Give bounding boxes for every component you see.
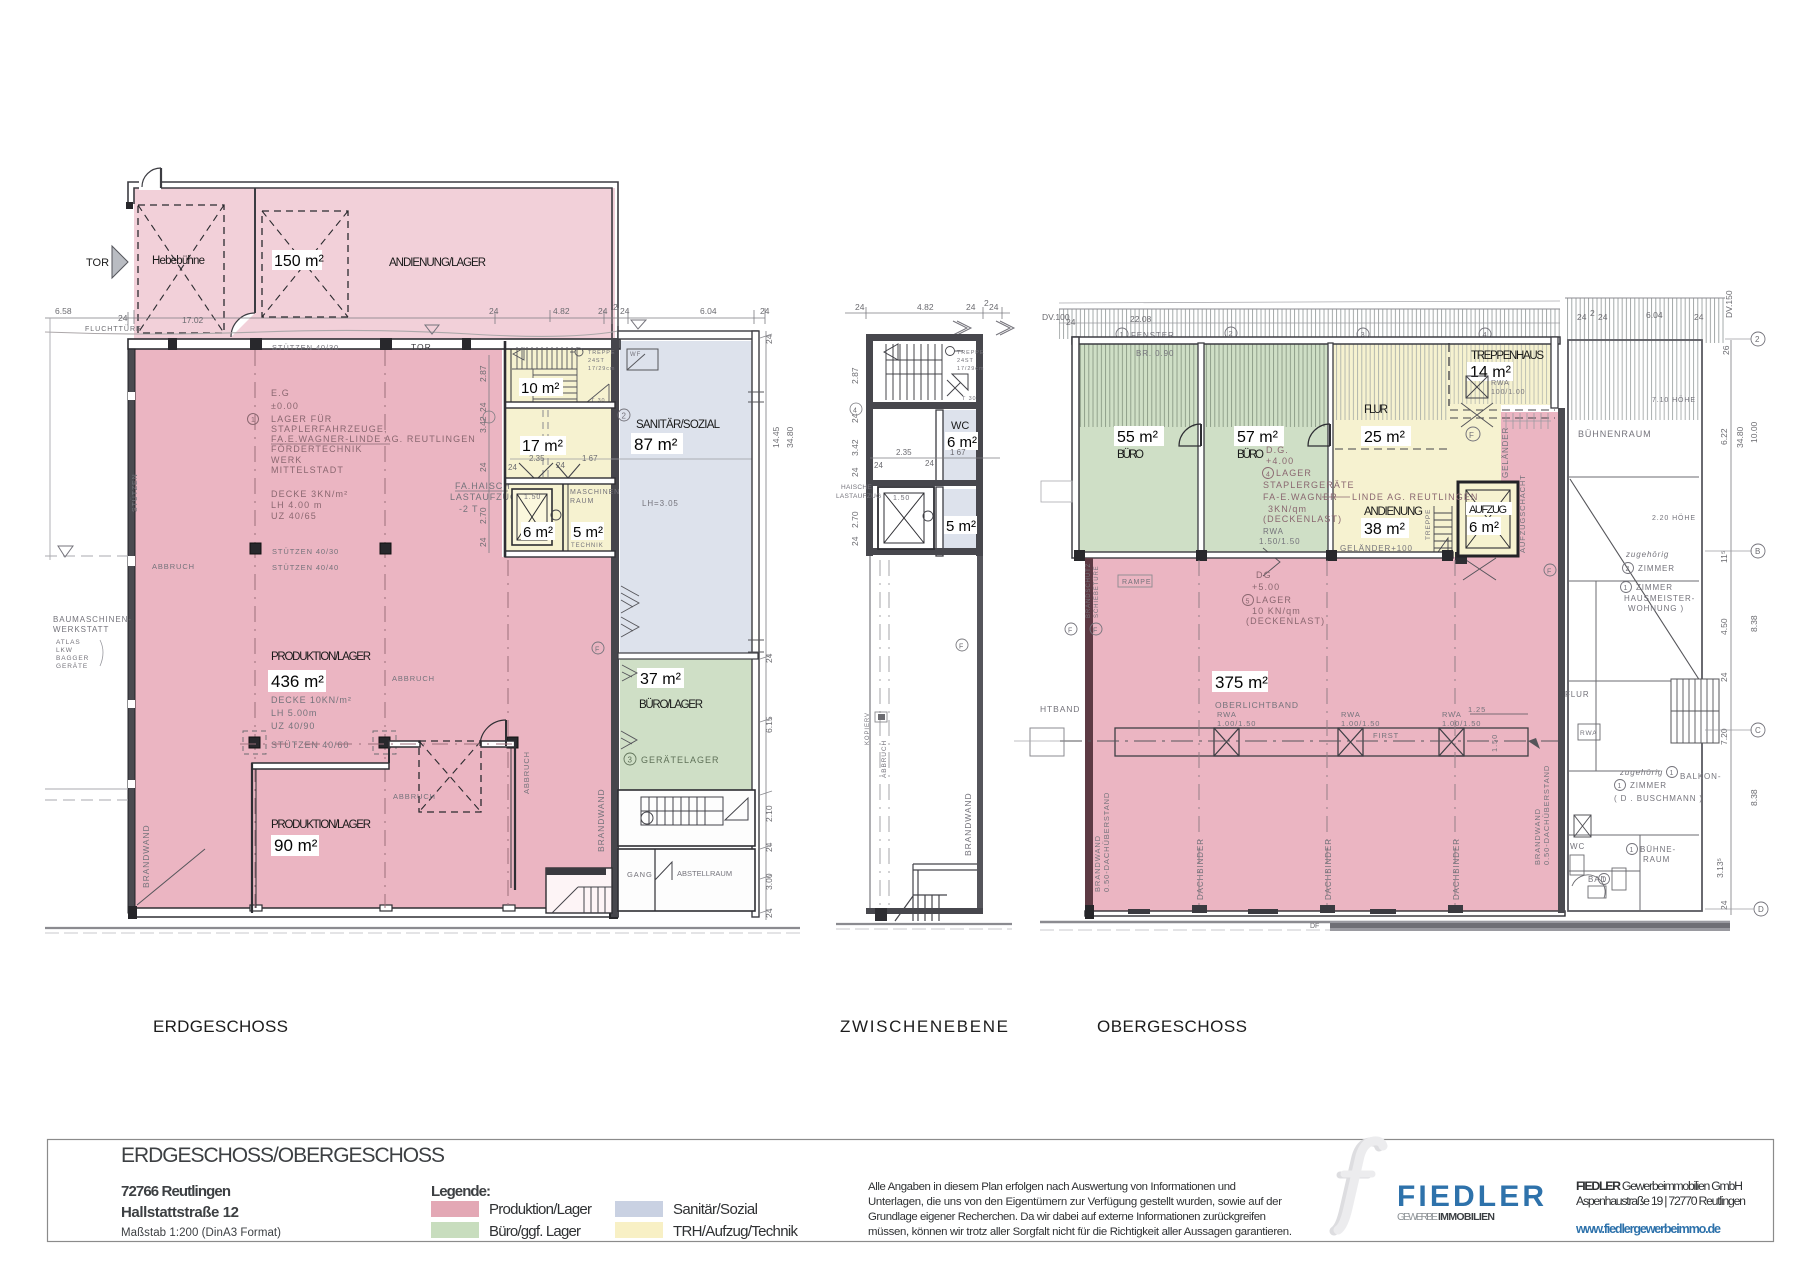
- svg-text:BÜHNE-: BÜHNE-: [1640, 845, 1676, 854]
- svg-text:14 m²: 14 m²: [1470, 364, 1512, 381]
- svg-text:( D . BUSCHMANN ): ( D . BUSCHMANN ): [1614, 794, 1703, 803]
- svg-text:GERÄTE: GERÄTE: [56, 662, 88, 670]
- svg-text:8.38: 8.38: [1749, 615, 1759, 632]
- svg-text:22.08: 22.08: [1130, 314, 1152, 324]
- svg-text:PRODUKTION/LAGER: PRODUKTION/LAGER: [271, 651, 371, 663]
- svg-text:BR. 0.90: BR. 0.90: [1136, 349, 1174, 358]
- svg-text:FIEDLER Gewerbeimmobilien GmbH: FIEDLER Gewerbeimmobilien GmbH: [1576, 1179, 1743, 1193]
- svg-text:1.00/1.50: 1.00/1.50: [1442, 719, 1481, 728]
- svg-text:DECKE 10KN/m²: DECKE 10KN/m²: [271, 695, 352, 705]
- svg-text:Unterlagen, die uns von den Ei: Unterlagen, die uns von den Eigentümern …: [868, 1196, 1282, 1208]
- svg-text:4.82: 4.82: [917, 302, 934, 312]
- svg-text:STÜTZEN 40/30: STÜTZEN 40/30: [272, 547, 339, 556]
- svg-text:+4.00: +4.00: [1266, 456, 1294, 466]
- svg-text:LASTAUFZUG: LASTAUFZUG: [450, 492, 518, 502]
- svg-text:ABBRUCH: ABBRUCH: [152, 562, 195, 571]
- svg-text:SANITÄR/SOZIAL: SANITÄR/SOZIAL: [636, 419, 721, 431]
- svg-text:KOPIERV: KOPIERV: [865, 712, 871, 745]
- svg-text:Hebebühne: Hebebühne: [152, 255, 205, 267]
- svg-text:436 m²: 436 m²: [271, 672, 324, 691]
- svg-text:BRANDWAND: BRANDWAND: [1533, 808, 1542, 865]
- svg-text:1: 1: [1630, 847, 1635, 854]
- svg-text:FLUR: FLUR: [1565, 690, 1590, 699]
- svg-text:90 m²: 90 m²: [274, 836, 318, 855]
- svg-text:MITTELSTADT: MITTELSTADT: [271, 465, 344, 475]
- svg-text:6.04: 6.04: [700, 306, 717, 316]
- svg-text:HTBAND: HTBAND: [1040, 704, 1080, 714]
- svg-text:STÜTZEN 40/40: STÜTZEN 40/40: [272, 563, 339, 572]
- svg-text:F: F: [959, 644, 963, 651]
- svg-text:RWA: RWA: [1263, 527, 1284, 536]
- svg-text:24: 24: [478, 462, 488, 472]
- svg-text:1.50: 1.50: [524, 494, 541, 501]
- svg-text:17/29cm: 17/29cm: [588, 366, 615, 372]
- svg-text:F: F: [1547, 569, 1552, 576]
- svg-text:TRH/Aufzug/Technik: TRH/Aufzug/Technik: [673, 1223, 799, 1240]
- svg-text:24: 24: [989, 302, 999, 312]
- svg-text:LAGER: LAGER: [1276, 468, 1312, 478]
- svg-text:DACHBINDER: DACHBINDER: [1196, 838, 1205, 900]
- svg-text:LKW: LKW: [56, 647, 73, 654]
- svg-text:24: 24: [764, 653, 774, 663]
- svg-text:ATLAS: ATLAS: [56, 639, 81, 646]
- svg-text:LAGER: LAGER: [1256, 595, 1292, 605]
- svg-text:5 m²: 5 m²: [573, 524, 603, 541]
- svg-text:SCHIEBETÜRE: SCHIEBETÜRE: [1093, 565, 1100, 618]
- svg-text:24: 24: [118, 313, 128, 323]
- svg-text:DACHBINDER: DACHBINDER: [1452, 838, 1461, 900]
- svg-text:37 m²: 37 m²: [640, 671, 682, 688]
- svg-text:DV.150: DV.150: [1724, 290, 1734, 318]
- svg-text:ZIMMER: ZIMMER: [1630, 781, 1667, 790]
- svg-text:24: 24: [1598, 312, 1608, 322]
- svg-text:BAUMASCHINEN-: BAUMASCHINEN-: [53, 615, 132, 624]
- svg-text:24: 24: [855, 302, 865, 312]
- svg-text:1 67: 1 67: [582, 454, 598, 463]
- svg-text:34.80: 34.80: [1735, 426, 1745, 448]
- svg-text:3: 3: [628, 756, 633, 765]
- svg-text:24: 24: [874, 461, 883, 470]
- svg-text:F: F: [1093, 628, 1098, 635]
- svg-text:WF: WF: [630, 352, 641, 358]
- svg-text:BALKON-: BALKON-: [1680, 772, 1721, 781]
- svg-text:2.70: 2.70: [850, 511, 860, 528]
- svg-text:1: 1: [1670, 770, 1675, 777]
- svg-text:24: 24: [966, 302, 976, 312]
- svg-text:ZWISCHENEBENE: ZWISCHENEBENE: [840, 1017, 1008, 1036]
- svg-text:STAPLERFAHRZEUGE,: STAPLERFAHRZEUGE,: [271, 424, 388, 434]
- svg-text:LH 4.00 m: LH 4.00 m: [271, 500, 322, 510]
- svg-text:24: 24: [1066, 317, 1076, 327]
- svg-text:2: 2: [1755, 335, 1760, 344]
- svg-text:TOR: TOR: [411, 342, 432, 352]
- svg-text:25 m²: 25 m²: [1364, 429, 1406, 446]
- svg-text:F: F: [595, 647, 600, 654]
- svg-text:7.10 HÖHE: 7.10 HÖHE: [1652, 396, 1696, 404]
- svg-text:24: 24: [850, 536, 860, 546]
- svg-text:TOR: TOR: [86, 257, 109, 269]
- svg-text:3KN/qm: 3KN/qm: [1268, 504, 1307, 514]
- svg-text:D: D: [1758, 905, 1764, 914]
- svg-text:ANDIENUNG: ANDIENUNG: [1364, 506, 1423, 518]
- svg-text:Legende:: Legende:: [431, 1183, 491, 1200]
- svg-text:RWA: RWA: [1341, 710, 1361, 719]
- svg-text:FIEDLER: FIEDLER: [1397, 1180, 1546, 1213]
- svg-text:ERDGESCHOSS: ERDGESCHOSS: [153, 1017, 288, 1036]
- svg-text:E.G: E.G: [271, 388, 290, 398]
- svg-text:ERDGESCHOSS/OBERGESCHOSS: ERDGESCHOSS/OBERGESCHOSS: [121, 1144, 445, 1167]
- svg-text:zugehörig: zugehörig: [1619, 768, 1663, 777]
- svg-text:1.50: 1.50: [1490, 734, 1499, 752]
- svg-text:WERK: WERK: [271, 455, 302, 465]
- svg-text:UZ 40/65: UZ 40/65: [271, 511, 317, 521]
- svg-text:BÜRO: BÜRO: [1117, 449, 1144, 461]
- svg-text:2.35: 2.35: [529, 454, 545, 463]
- svg-text:TREPPE: TREPPE: [957, 350, 984, 356]
- svg-text:F: F: [1469, 431, 1475, 440]
- svg-text:RWA: RWA: [1442, 710, 1462, 719]
- svg-text:24: 24: [620, 306, 630, 316]
- svg-text:24: 24: [1577, 312, 1587, 322]
- svg-text:www.fiedlergewerbeimmo.de: www.fiedlergewerbeimmo.de: [1575, 1222, 1721, 1236]
- svg-text:ZIMMER: ZIMMER: [1638, 564, 1675, 573]
- svg-text:WC: WC: [1570, 842, 1585, 851]
- svg-text:6 m²: 6 m²: [523, 524, 553, 541]
- svg-text:24: 24: [489, 306, 499, 316]
- svg-text:1: 1: [251, 417, 256, 424]
- svg-text:ZIMMER: ZIMMER: [1636, 583, 1673, 592]
- svg-text:2.35: 2.35: [896, 448, 912, 457]
- svg-text:6.04: 6.04: [1646, 310, 1663, 320]
- svg-text:FIRST: FIRST: [1373, 731, 1399, 740]
- svg-text:GELÄNDER: GELÄNDER: [1501, 427, 1510, 478]
- svg-text:1.50/1.50: 1.50/1.50: [1259, 537, 1300, 546]
- svg-text:375 m²: 375 m²: [1215, 673, 1268, 692]
- svg-text:BRANDWAND: BRANDWAND: [963, 792, 973, 856]
- svg-text:C: C: [1755, 726, 1761, 735]
- svg-text:1: 1: [1624, 585, 1629, 592]
- svg-text:26: 26: [1721, 345, 1731, 355]
- svg-text:HAISCHE: HAISCHE: [841, 484, 872, 491]
- svg-text:STÜTZEN: STÜTZEN: [131, 473, 139, 512]
- svg-text:72766 Reutlingen: 72766 Reutlingen: [121, 1183, 231, 1200]
- svg-text:24: 24: [925, 459, 934, 468]
- svg-text:2.87: 2.87: [850, 367, 860, 384]
- svg-text:2: 2: [622, 412, 627, 421]
- svg-text:4.50: 4.50: [1719, 618, 1729, 635]
- svg-text:Maßstab 1:200 (DinA3 Format): Maßstab 1:200 (DinA3 Format): [121, 1227, 281, 1239]
- svg-text:7.20: 7.20: [1719, 728, 1729, 745]
- svg-text:2.20 HÖHE: 2.20 HÖHE: [1652, 514, 1696, 522]
- svg-text:BRANDSCHUTZ: BRANDSCHUTZ: [1086, 563, 1092, 618]
- svg-text:17 m²: 17 m²: [522, 438, 564, 455]
- svg-text:2.70: 2.70: [478, 507, 488, 524]
- svg-text:17.02: 17.02: [182, 315, 204, 325]
- svg-text:AUFZUG: AUFZUG: [1469, 504, 1507, 516]
- svg-text:100/1.00: 100/1.00: [1491, 389, 1525, 396]
- svg-text:24: 24: [760, 306, 770, 316]
- svg-text:RAUM: RAUM: [570, 498, 594, 505]
- svg-text:38 m²: 38 m²: [1364, 521, 1406, 538]
- svg-text:24ST: 24ST: [588, 358, 605, 364]
- svg-text:5 m²: 5 m²: [946, 518, 976, 535]
- svg-text:FÖRDERTECHNIK: FÖRDERTECHNIK: [271, 444, 363, 454]
- svg-text:PRODUKTION/LAGER: PRODUKTION/LAGER: [271, 819, 371, 831]
- svg-text:1: 1: [1618, 783, 1623, 790]
- svg-text:DACHBINDER: DACHBINDER: [1324, 838, 1333, 900]
- svg-text:D.G.: D.G.: [1266, 445, 1289, 455]
- svg-text:DECKE 3KN/m²: DECKE 3KN/m²: [271, 489, 348, 499]
- svg-text:TREPPE: TREPPE: [1425, 509, 1432, 540]
- svg-text:MASCHINEN: MASCHINEN: [570, 489, 620, 496]
- svg-text:0.50-DACHÜBERSTAND: 0.50-DACHÜBERSTAND: [1542, 765, 1551, 865]
- svg-text:0.50-DACHÜBERSTAND: 0.50-DACHÜBERSTAND: [1102, 792, 1111, 892]
- svg-text:IMMOBILIEN: IMMOBILIEN: [1438, 1211, 1495, 1223]
- svg-text:Hallstattstraße 12: Hallstattstraße 12: [121, 1204, 239, 1221]
- svg-text:2.10: 2.10: [764, 805, 774, 822]
- svg-text:14.45: 14.45: [771, 426, 781, 448]
- svg-text:LINDE AG. REUTLINGEN: LINDE AG. REUTLINGEN: [1352, 492, 1479, 502]
- svg-text:B: B: [1755, 547, 1760, 556]
- svg-text:24: 24: [1719, 900, 1729, 910]
- svg-text:2: 2: [1590, 308, 1595, 318]
- svg-text:STAPLERGERÄTE: STAPLERGERÄTE: [1263, 480, 1355, 490]
- svg-text:24: 24: [850, 467, 860, 477]
- svg-text:Alle Angaben in diesem Plan er: Alle Angaben in diesem Plan erfolgen nac…: [868, 1181, 1236, 1193]
- svg-text:24: 24: [478, 537, 488, 547]
- svg-text:LAGER FÜR: LAGER FÜR: [271, 414, 332, 424]
- svg-text:BÜRO/LAGER: BÜRO/LAGER: [639, 699, 703, 711]
- svg-text:24ST: 24ST: [957, 358, 974, 364]
- svg-text:FLUCHTTÜRE: FLUCHTTÜRE: [85, 325, 142, 333]
- svg-text:(DECKENLAST): (DECKENLAST): [1263, 514, 1342, 524]
- svg-text:BRANDWAND: BRANDWAND: [141, 824, 151, 888]
- svg-text:4: 4: [1266, 472, 1271, 479]
- svg-text:BÜRO: BÜRO: [1237, 449, 1264, 461]
- svg-text:T 30: T 30: [962, 396, 977, 402]
- svg-text:ABBRUCH: ABBRUCH: [392, 674, 435, 683]
- svg-text:150 m²: 150 m²: [274, 253, 324, 270]
- svg-text:FLUR: FLUR: [1364, 404, 1388, 416]
- svg-text:11⁵: 11⁵: [1719, 551, 1729, 563]
- svg-text:F: F: [1068, 628, 1073, 635]
- svg-text:10.00: 10.00: [1749, 421, 1759, 443]
- svg-text:ANDIENUNG/LAGER: ANDIENUNG/LAGER: [389, 257, 486, 269]
- svg-text:müssen, können wir trotz aller: müssen, können wir trotz aller Sorgfalt …: [868, 1226, 1292, 1238]
- svg-text:6 m²: 6 m²: [1469, 519, 1499, 536]
- svg-text:WOHNUNG ): WOHNUNG ): [1628, 604, 1684, 613]
- svg-text:Grundlage eigener Recherchen.: Grundlage eigener Recherchen. Da wir dab…: [868, 1211, 1266, 1223]
- svg-text:2.87: 2.87: [478, 365, 488, 382]
- svg-text:STÜTZEN 40/60: STÜTZEN 40/60: [271, 740, 349, 750]
- svg-text:±0.00: ±0.00: [271, 401, 299, 411]
- svg-text:GANG: GANG: [627, 870, 653, 879]
- svg-text:FA.HAISCH: FA.HAISCH: [455, 481, 511, 491]
- svg-text:RAUM: RAUM: [1643, 855, 1670, 864]
- svg-text:RAMPE: RAMPE: [1122, 579, 1151, 586]
- svg-text:57 m²: 57 m²: [1237, 429, 1279, 446]
- svg-text:HAUSMEISTER-: HAUSMEISTER-: [1624, 594, 1695, 603]
- svg-text:RWA: RWA: [1491, 380, 1510, 387]
- svg-text:GEWERBE: GEWERBE: [1397, 1211, 1438, 1223]
- svg-text:24: 24: [508, 463, 517, 472]
- svg-text:1.25: 1.25: [1468, 705, 1486, 714]
- svg-text:2: 2: [1626, 566, 1631, 573]
- svg-text:ABSTELLRAUM: ABSTELLRAUM: [677, 869, 733, 878]
- svg-text:UZ 40/90: UZ 40/90: [271, 721, 315, 731]
- svg-text:10 KN/qm: 10 KN/qm: [1252, 606, 1301, 616]
- svg-text:Sanitär/Sozial: Sanitär/Sozial: [673, 1201, 758, 1218]
- svg-text:DG: DG: [1256, 570, 1272, 580]
- svg-text:1.00/1.50: 1.00/1.50: [1217, 719, 1256, 728]
- svg-text:OBERGESCHOSS: OBERGESCHOSS: [1097, 1017, 1247, 1036]
- svg-text:6.22: 6.22: [1719, 428, 1729, 445]
- svg-text:ABBRUCH: ABBRUCH: [522, 751, 531, 794]
- svg-text:34.80: 34.80: [785, 426, 795, 448]
- svg-text:+5.00: +5.00: [1252, 582, 1280, 592]
- svg-text:TREPPE: TREPPE: [588, 350, 615, 356]
- svg-text:ABBRUCH: ABBRUCH: [393, 792, 436, 801]
- svg-text:TREPPENHAUS: TREPPENHAUS: [1471, 350, 1544, 362]
- svg-text:3.13⁵: 3.13⁵: [1715, 858, 1725, 878]
- svg-text:LH 5.00m: LH 5.00m: [271, 708, 317, 718]
- svg-text:55 m²: 55 m²: [1117, 429, 1159, 446]
- svg-text:24: 24: [1719, 672, 1729, 682]
- svg-text:-2 T: -2 T: [459, 504, 478, 514]
- svg-text:10 m²: 10 m²: [521, 380, 559, 397]
- svg-text:2: 2: [613, 302, 618, 312]
- svg-text:LH=3.05: LH=3.05: [642, 499, 679, 508]
- svg-text:Aspenhaustraße 19 | 72770 Reut: Aspenhaustraße 19 | 72770 Reutlingen: [1576, 1194, 1746, 1208]
- svg-text:5: 5: [1246, 599, 1251, 606]
- svg-text:3.42: 3.42: [850, 439, 860, 456]
- svg-text:6.58: 6.58: [55, 306, 72, 316]
- svg-text:STÜTZEN 40/30: STÜTZEN 40/30: [272, 343, 339, 352]
- svg-text:zugehörig: zugehörig: [1625, 550, 1669, 559]
- svg-text:WC: WC: [951, 420, 969, 432]
- svg-text:(DECKENLAST): (DECKENLAST): [1246, 616, 1325, 626]
- svg-text:24: 24: [764, 334, 774, 344]
- svg-text:ABBRUCH: ABBRUCH: [881, 740, 888, 778]
- svg-text:4: 4: [853, 408, 857, 415]
- svg-text:BÜHNENRAUM: BÜHNENRAUM: [1578, 429, 1652, 439]
- svg-text:TECHNIK: TECHNIK: [571, 543, 604, 549]
- svg-text:17/29cm: 17/29cm: [957, 366, 984, 372]
- svg-text:WERKSTATT: WERKSTATT: [53, 625, 109, 634]
- svg-text:RWA: RWA: [1580, 730, 1598, 737]
- svg-text:1.00/1.50: 1.00/1.50: [1341, 719, 1380, 728]
- svg-text:1 67: 1 67: [950, 448, 966, 457]
- svg-text:87 m²: 87 m²: [634, 435, 678, 454]
- svg-text:BRANDWAND: BRANDWAND: [1093, 835, 1102, 892]
- svg-text:DF: DF: [1310, 923, 1319, 930]
- svg-text:8.38: 8.38: [1749, 789, 1759, 806]
- svg-text:24: 24: [1694, 312, 1704, 322]
- svg-text:GERÄTELAGER: GERÄTELAGER: [641, 755, 720, 765]
- svg-text:Produktion/Lager: Produktion/Lager: [489, 1201, 592, 1218]
- svg-text:Büro/ggf. Lager: Büro/ggf. Lager: [489, 1223, 581, 1240]
- svg-text:FA.E.WAGNER-LINDE AG. REUTLING: FA.E.WAGNER-LINDE AG. REUTLINGEN: [271, 434, 476, 444]
- svg-text:BRANDWAND: BRANDWAND: [596, 788, 606, 852]
- svg-text:RWA: RWA: [1217, 710, 1237, 719]
- svg-text:LASTAUFZUG: LASTAUFZUG: [836, 493, 882, 500]
- svg-text:24: 24: [478, 402, 488, 412]
- svg-text:4.82: 4.82: [553, 306, 570, 316]
- svg-text:OBERLICHTBAND: OBERLICHTBAND: [1215, 700, 1299, 710]
- svg-text:BAGGER: BAGGER: [56, 655, 89, 662]
- svg-text:24: 24: [598, 306, 608, 316]
- svg-text:1.50: 1.50: [893, 495, 910, 502]
